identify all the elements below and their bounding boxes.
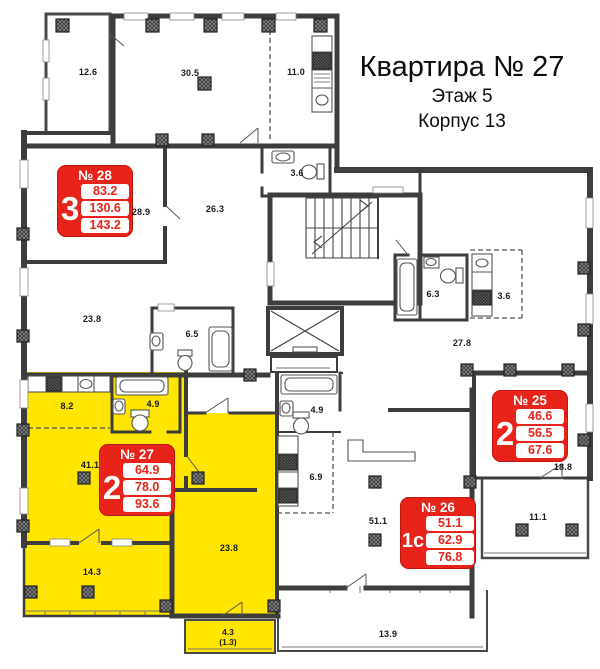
room-count: 1с — [402, 526, 424, 556]
area-living: 64.9 — [123, 463, 171, 478]
area-living: 46.6 — [516, 409, 564, 424]
room-area-label-6: 23.8 — [83, 314, 101, 324]
room-area-label-19: 14.3 — [83, 567, 101, 577]
apartment-card-27[interactable]: № 27 2 64.9 78.0 93.6 — [99, 444, 175, 516]
area-full: 67.6 — [516, 443, 564, 458]
room-area-label-0: 12.6 — [79, 67, 97, 77]
room-area-label-8: 6.3 — [426, 289, 439, 299]
room-area-label-13: 41.1 — [81, 460, 99, 470]
title-apartment: Квартира № 27 — [328, 50, 596, 84]
balcony-area: 4.3 — [219, 627, 236, 637]
area-full: 93.6 — [123, 497, 171, 512]
apartment-card-26[interactable]: № 26 1с 51.1 62.9 76.8 — [400, 497, 476, 569]
room-count: 3 — [61, 194, 79, 224]
apartment-number: № 28 — [61, 168, 129, 183]
sink-icon — [115, 401, 123, 411]
apartment-number: № 26 — [404, 500, 472, 515]
page-title: Квартира № 27 Этаж 5 Корпус 13 — [328, 50, 596, 134]
area-living: 83.2 — [81, 184, 129, 199]
area-total: 78.0 — [123, 480, 171, 495]
stairs — [306, 198, 378, 258]
elevator-icon — [271, 311, 339, 368]
kitchen-counter-icon — [348, 440, 415, 461]
bathtub-icon — [120, 380, 164, 392]
room-area-label-4: 26.3 — [206, 204, 224, 214]
area-total: 56.5 — [516, 426, 564, 441]
room-count: 2 — [496, 419, 514, 449]
room-count: 2 — [103, 473, 121, 503]
floorplan-page: Квартира № 27 Этаж 5 Корпус 13 № 28 3 83… — [0, 0, 600, 669]
apartment-card-25[interactable]: № 25 2 46.6 56.5 67.6 — [492, 390, 568, 462]
area-total: 130.6 — [81, 201, 129, 216]
room-area-label-20: 23.8 — [220, 543, 238, 553]
area-full: 143.2 — [81, 218, 129, 233]
area-total: 62.9 — [426, 533, 474, 548]
room-area-label-12: 4.9 — [146, 399, 159, 409]
room-area-label-21: 13.9 — [379, 629, 397, 639]
balcony-area-reduced: (1.3) — [219, 637, 236, 647]
room-area-label-5: 3.6 — [290, 168, 303, 178]
title-floor: Этаж 5 — [328, 84, 596, 109]
room-area-label-10: 27.8 — [453, 338, 471, 348]
balcony-area-label: 4.3 (1.3) — [219, 627, 236, 647]
room-area-label-7: 6.5 — [185, 329, 198, 339]
room-area-label-14: 4.9 — [310, 405, 323, 415]
room-area-label-15: 6.9 — [309, 472, 322, 482]
room-area-label-9: 3.6 — [497, 291, 510, 301]
area-living: 51.1 — [426, 516, 474, 531]
room-area-label-2: 11.0 — [287, 67, 305, 77]
room-area-label-11: 8.2 — [60, 401, 73, 411]
room-area-label-18: 11.1 — [529, 512, 547, 522]
room-area-label-17: 18.8 — [554, 462, 572, 472]
apartment-number: № 27 — [103, 447, 171, 462]
room-area-label-3: 28.9 — [132, 207, 150, 217]
room-area-label-16: 51.1 — [369, 516, 387, 526]
area-full: 76.8 — [426, 550, 474, 565]
title-building: Корпус 13 — [328, 109, 596, 134]
room-area-label-1: 30.5 — [181, 68, 199, 78]
toilet-icon — [132, 415, 148, 431]
apartment-card-28[interactable]: № 28 3 83.2 130.6 143.2 — [57, 165, 133, 237]
apartment-number: № 25 — [496, 393, 564, 408]
